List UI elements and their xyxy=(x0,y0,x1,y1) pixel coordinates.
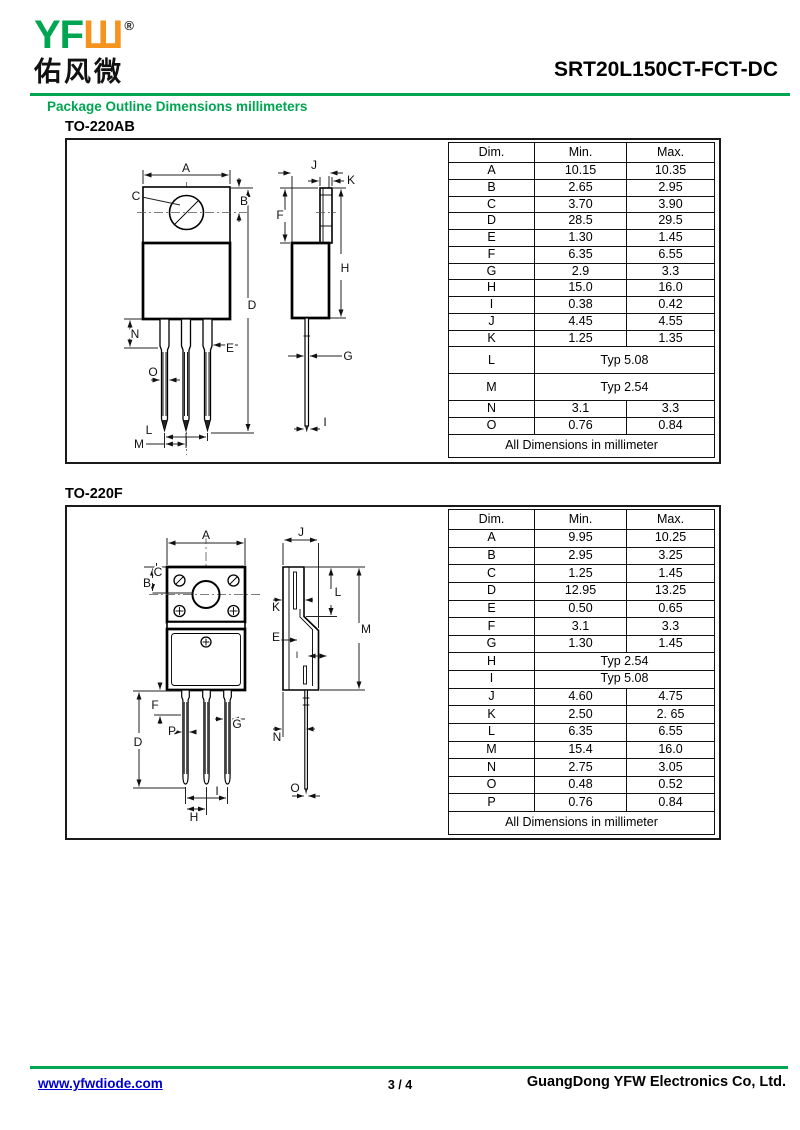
dim-label: I xyxy=(215,784,218,798)
max-cell: 2.95 xyxy=(627,179,715,196)
min-cell: 2.95 xyxy=(535,547,627,565)
table-row: D12.9513.25 xyxy=(449,582,715,600)
min-cell: 15.4 xyxy=(535,741,627,759)
max-cell: 6.55 xyxy=(627,723,715,741)
dim-cell: K xyxy=(449,706,535,724)
min-cell: 1.25 xyxy=(535,330,627,347)
dim-label: N xyxy=(131,327,140,341)
dim-cell: G xyxy=(449,263,535,280)
table-footer-row: All Dimensions in millimeter xyxy=(449,435,715,458)
table-row: M15.416.0 xyxy=(449,741,715,759)
min-cell: 4.60 xyxy=(535,688,627,706)
table-row: L6.356.55 xyxy=(449,723,715,741)
table-row: D28.529.5 xyxy=(449,213,715,230)
dim-cell: D xyxy=(449,213,535,230)
dim-label: I xyxy=(296,650,299,660)
table-row: G1.301.45 xyxy=(449,635,715,653)
dim-label: A xyxy=(182,161,190,175)
dim-label: G xyxy=(232,717,241,731)
package-name: TO-220F xyxy=(65,486,721,502)
dim-cell: M xyxy=(449,374,535,401)
typ-cell: Typ 2.54 xyxy=(535,374,715,401)
table-row: K2.502. 65 xyxy=(449,706,715,724)
max-cell: 29.5 xyxy=(627,213,715,230)
table-header-row: Dim.Min.Max. xyxy=(449,143,715,163)
table-row: C1.251.45 xyxy=(449,565,715,583)
min-cell: 2.65 xyxy=(535,179,627,196)
max-cell: 4.75 xyxy=(627,688,715,706)
dim-label: C xyxy=(154,565,163,579)
table-footer-row: All Dimensions in millimeter xyxy=(449,812,715,835)
to220ab-side-view xyxy=(278,173,346,433)
table-row: F3.13.3 xyxy=(449,618,715,636)
units-note: All Dimensions in millimeter xyxy=(449,812,715,835)
table-row: H15.016.0 xyxy=(449,280,715,297)
dim-label: C xyxy=(132,189,141,203)
typ-cell: Typ 2.54 xyxy=(535,653,715,671)
min-cell: 12.95 xyxy=(535,582,627,600)
to220ab-drawing: ACBDNEOLMJKFHGI xyxy=(67,140,447,462)
footer-rule xyxy=(30,1066,788,1069)
dim-label: N xyxy=(273,730,282,744)
table-row: ITyp 5.08 xyxy=(449,671,715,689)
dim-label: M xyxy=(134,437,144,451)
page-subtitle: Package Outline Dimensions millimeters xyxy=(47,99,307,114)
dim-label: J xyxy=(311,158,317,172)
logo-w-glyph: Ш xyxy=(83,13,122,57)
column-header: Max. xyxy=(627,143,715,163)
min-cell: 6.35 xyxy=(535,723,627,741)
table-row: O0.760.84 xyxy=(449,418,715,435)
table-row: A10.1510.35 xyxy=(449,163,715,180)
min-cell: 4.45 xyxy=(535,313,627,330)
part-number-title: SRT20L150CT-FCT-DC xyxy=(554,58,778,82)
dim-cell: I xyxy=(449,297,535,314)
max-cell: 0.52 xyxy=(627,776,715,794)
max-cell: 6.55 xyxy=(627,246,715,263)
dim-label: B xyxy=(143,576,151,590)
dim-label: L xyxy=(335,585,342,599)
brand-logo: YFШ® 佑风微 xyxy=(34,6,134,87)
table-row: N3.13.3 xyxy=(449,401,715,418)
max-cell: 3.3 xyxy=(627,263,715,280)
table-row: K1.251.35 xyxy=(449,330,715,347)
typ-cell: Typ 5.08 xyxy=(535,347,715,374)
min-cell: 2.9 xyxy=(535,263,627,280)
max-cell: 3.3 xyxy=(627,401,715,418)
max-cell: 2. 65 xyxy=(627,706,715,724)
table-row: I0.380.42 xyxy=(449,297,715,314)
dim-cell: C xyxy=(449,565,535,583)
dim-cell: O xyxy=(449,418,535,435)
dim-cell: B xyxy=(449,179,535,196)
min-cell: 2.50 xyxy=(535,706,627,724)
dim-cell: P xyxy=(449,794,535,812)
table-row: HTyp 2.54 xyxy=(449,653,715,671)
max-cell: 1.45 xyxy=(627,565,715,583)
dim-cell: N xyxy=(449,401,535,418)
dim-cell: D xyxy=(449,582,535,600)
dim-cell: J xyxy=(449,313,535,330)
min-cell: 2.75 xyxy=(535,759,627,777)
max-cell: 0.84 xyxy=(627,794,715,812)
package-outline-box: ACBDNEOLMJKFHGI Dim.Min.Max.A10.1510.35B… xyxy=(65,138,721,464)
min-cell: 1.30 xyxy=(535,635,627,653)
table-row: E1.301.45 xyxy=(449,230,715,247)
dim-label: P xyxy=(168,724,176,738)
dim-cell: E xyxy=(449,600,535,618)
table-row: LTyp 5.08 xyxy=(449,347,715,374)
dim-cell: O xyxy=(449,776,535,794)
dimension-table-to220f: Dim.Min.Max.A9.9510.25B2.953.25C1.251.45… xyxy=(448,509,715,835)
package-name: TO-220AB xyxy=(65,119,721,135)
max-cell: 13.25 xyxy=(627,582,715,600)
dim-label: K xyxy=(272,600,280,614)
to220f-drawing: ACBFPDGIHJKLMEINO xyxy=(67,507,447,838)
column-header: Max. xyxy=(627,510,715,530)
dim-cell: G xyxy=(449,635,535,653)
table-row: E0.500.65 xyxy=(449,600,715,618)
dim-cell: J xyxy=(449,688,535,706)
max-cell: 4.55 xyxy=(627,313,715,330)
dim-cell: E xyxy=(449,230,535,247)
max-cell: 10.25 xyxy=(627,530,715,548)
dim-cell: F xyxy=(449,246,535,263)
max-cell: 1.35 xyxy=(627,330,715,347)
min-cell: 0.48 xyxy=(535,776,627,794)
max-cell: 1.45 xyxy=(627,230,715,247)
max-cell: 3.90 xyxy=(627,196,715,213)
max-cell: 16.0 xyxy=(627,280,715,297)
logo-yf: YF xyxy=(34,13,83,57)
dim-label: H xyxy=(190,810,199,824)
datasheet-page: YFШ® 佑风微 SRT20L150CT-FCT-DC Package Outl… xyxy=(0,0,800,1130)
dim-cell: L xyxy=(449,347,535,374)
company-name: GuangDong YFW Electronics Co, Ltd. xyxy=(527,1074,786,1090)
dim-cell: N xyxy=(449,759,535,777)
max-cell: 0.42 xyxy=(627,297,715,314)
column-header: Min. xyxy=(535,143,627,163)
dim-cell: F xyxy=(449,618,535,636)
section-to220ab: TO-220AB xyxy=(65,119,721,464)
dim-label: E xyxy=(272,630,280,644)
section-to220f: TO-220F xyxy=(65,486,721,840)
registered-trademark-icon: ® xyxy=(124,18,134,33)
max-cell: 0.84 xyxy=(627,418,715,435)
logo-wordmark: YFШ® xyxy=(34,6,134,55)
min-cell: 15.0 xyxy=(535,280,627,297)
column-header: Dim. xyxy=(449,510,535,530)
min-cell: 1.25 xyxy=(535,565,627,583)
min-cell: 3.70 xyxy=(535,196,627,213)
min-cell: 0.76 xyxy=(535,794,627,812)
min-cell: 1.30 xyxy=(535,230,627,247)
dim-cell: C xyxy=(449,196,535,213)
logo-chinese-name: 佑风微 xyxy=(34,57,134,87)
max-cell: 0.65 xyxy=(627,600,715,618)
dim-label: G xyxy=(343,349,352,363)
min-cell: 0.76 xyxy=(535,418,627,435)
package-outline-box: ACBFPDGIHJKLMEINO Dim.Min.Max.A9.9510.25… xyxy=(65,505,721,840)
max-cell: 3.3 xyxy=(627,618,715,636)
table-row: B2.652.95 xyxy=(449,179,715,196)
table-row: C3.703.90 xyxy=(449,196,715,213)
table-header-row: Dim.Min.Max. xyxy=(449,510,715,530)
dim-cell: I xyxy=(449,671,535,689)
dim-label: D xyxy=(134,735,143,749)
dim-label: B xyxy=(240,194,248,208)
dim-label: D xyxy=(248,298,257,312)
table-row: P0.760.84 xyxy=(449,794,715,812)
min-cell: 28.5 xyxy=(535,213,627,230)
max-cell: 3.05 xyxy=(627,759,715,777)
column-header: Min. xyxy=(535,510,627,530)
dim-label: O xyxy=(148,365,157,379)
min-cell: 10.15 xyxy=(535,163,627,180)
column-header: Dim. xyxy=(449,143,535,163)
min-cell: 9.95 xyxy=(535,530,627,548)
dim-cell: H xyxy=(449,280,535,297)
min-cell: 3.1 xyxy=(535,401,627,418)
dim-cell: A xyxy=(449,530,535,548)
table-row: J4.604.75 xyxy=(449,688,715,706)
dim-cell: B xyxy=(449,547,535,565)
table-row: N2.753.05 xyxy=(449,759,715,777)
to220f-side-view xyxy=(273,540,365,796)
dim-cell: L xyxy=(449,723,535,741)
min-cell: 0.38 xyxy=(535,297,627,314)
to220f-front-view xyxy=(133,535,260,815)
min-cell: 3.1 xyxy=(535,618,627,636)
dim-label: K xyxy=(347,173,355,187)
typ-cell: Typ 5.08 xyxy=(535,671,715,689)
dim-label: J xyxy=(298,525,304,539)
dim-label: E xyxy=(226,341,234,355)
table-row: J4.454.55 xyxy=(449,313,715,330)
max-cell: 16.0 xyxy=(627,741,715,759)
dim-label: O xyxy=(290,781,299,795)
table-row: G2.93.3 xyxy=(449,263,715,280)
dim-label: F xyxy=(276,208,283,222)
dim-cell: K xyxy=(449,330,535,347)
dim-label: L xyxy=(146,423,153,437)
dim-label: F xyxy=(151,698,158,712)
dimension-table-to220ab: Dim.Min.Max.A10.1510.35B2.652.95C3.703.9… xyxy=(448,142,715,458)
max-cell: 10.35 xyxy=(627,163,715,180)
dim-label: A xyxy=(202,528,210,542)
table-row: A9.9510.25 xyxy=(449,530,715,548)
dim-label: M xyxy=(361,622,371,636)
header-rule xyxy=(30,93,790,96)
dim-cell: M xyxy=(449,741,535,759)
table-row: O0.480.52 xyxy=(449,776,715,794)
dim-label: H xyxy=(341,261,350,275)
dim-cell: A xyxy=(449,163,535,180)
max-cell: 1.45 xyxy=(627,635,715,653)
dim-cell: H xyxy=(449,653,535,671)
table-row: MTyp 2.54 xyxy=(449,374,715,401)
min-cell: 0.50 xyxy=(535,600,627,618)
units-note: All Dimensions in millimeter xyxy=(449,435,715,458)
to220ab-front-view xyxy=(124,170,254,455)
table-row: F6.356.55 xyxy=(449,246,715,263)
table-row: B2.953.25 xyxy=(449,547,715,565)
max-cell: 3.25 xyxy=(627,547,715,565)
dim-label: I xyxy=(323,415,326,429)
min-cell: 6.35 xyxy=(535,246,627,263)
